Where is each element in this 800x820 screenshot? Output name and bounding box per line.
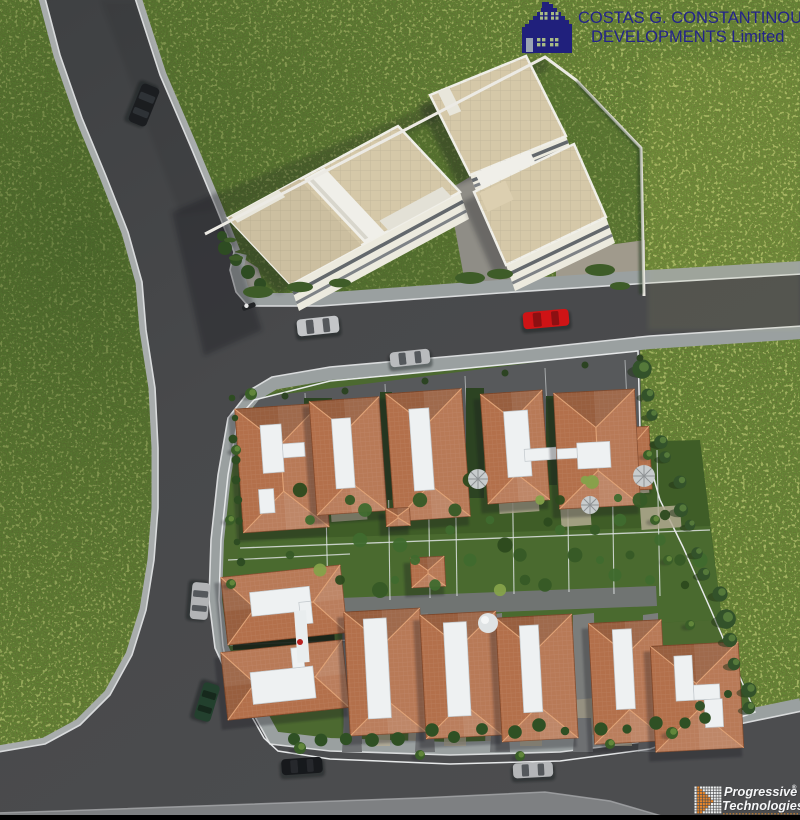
- svg-text:®: ®: [792, 784, 797, 791]
- svg-text:Technologies: Technologies: [722, 798, 800, 813]
- svg-text:COSTAS G. CONSTANTINOU: COSTAS G. CONSTANTINOU: [578, 9, 800, 27]
- svg-text:DEVELOPMENTS Limited: DEVELOPMENTS Limited: [591, 28, 784, 46]
- svg-text:Progressive: Progressive: [724, 784, 797, 799]
